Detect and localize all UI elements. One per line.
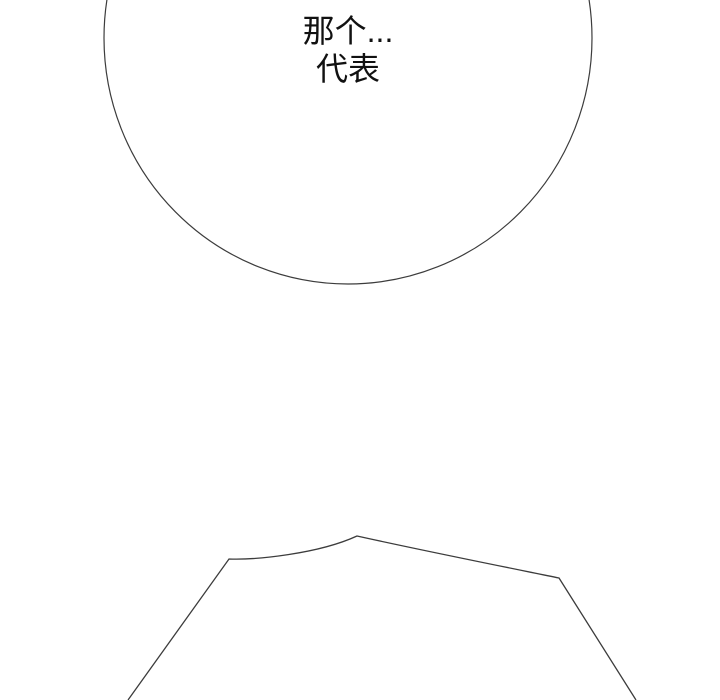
speech-bubble-text: 那个... 代表 [303,12,394,88]
comic-panel: 那个... 代表 [0,0,720,700]
speech-line-1: 那个... [303,12,394,50]
speech-line-2: 代表 [303,50,394,88]
character-shoulders-line [128,536,636,700]
panel-line-art [0,0,720,700]
